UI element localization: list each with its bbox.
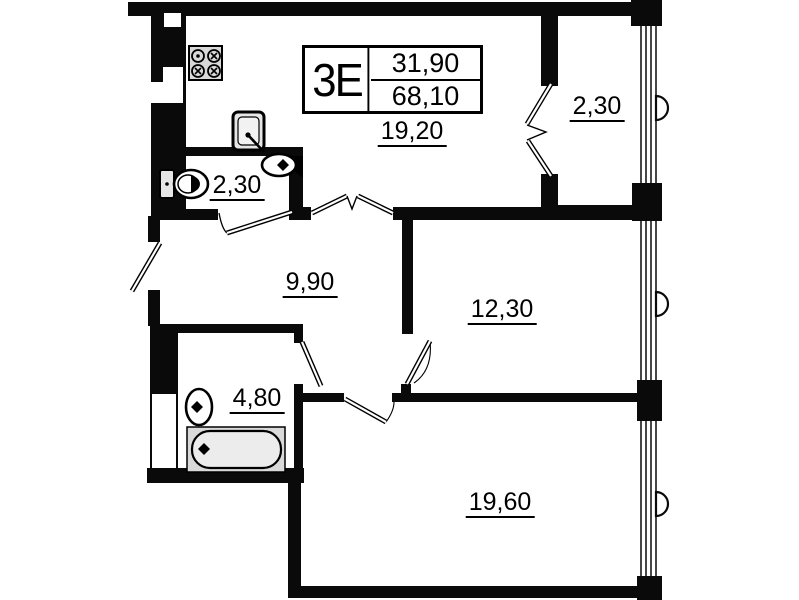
wc-door — [219, 212, 292, 233]
room-area-label-bedroom-mid: 12,30 — [468, 297, 537, 325]
door-bedroom-mid — [407, 341, 430, 384]
total-area-value: 68,10 — [371, 81, 480, 112]
washbasin-icon — [186, 389, 212, 425]
living-area-value: 31,90 — [371, 48, 480, 81]
double-door-kitchen — [312, 196, 393, 213]
room-area-label-wc: 2,30 — [210, 173, 265, 201]
door-bedroom-big — [345, 399, 394, 422]
window-bedroom-mid — [641, 221, 656, 380]
stove-icon — [189, 46, 222, 80]
kitchen-sink-icon — [233, 112, 264, 152]
floorplan: 3Е 31,90 68,10 19,20 2,30 2,30 9,90 12,3… — [0, 0, 799, 600]
title-block: 3Е 31,90 68,10 — [302, 45, 483, 114]
vent-bump-icon — [656, 96, 668, 120]
bathroom-door — [302, 342, 321, 386]
unit-type-label: 3Е — [307, 48, 370, 111]
vent-bump-icon — [656, 292, 668, 316]
room-area-label-hall: 9,90 — [283, 270, 338, 298]
vent-bump-icon — [656, 492, 668, 516]
toilet-icon — [160, 170, 208, 198]
bathtub-icon — [187, 427, 285, 472]
double-door-loggia — [527, 84, 551, 176]
window-loggia — [641, 26, 656, 184]
room-area-label-bathroom: 4,80 — [230, 386, 285, 414]
entrance-door — [132, 243, 160, 291]
room-area-label-kitchen-living: 19,20 — [378, 119, 447, 147]
window-bedroom-big — [641, 421, 656, 576]
room-area-label-loggia: 2,30 — [570, 94, 625, 122]
corner-washbasin-icon — [262, 154, 303, 178]
room-area-label-bedroom-big: 19,60 — [466, 490, 535, 518]
